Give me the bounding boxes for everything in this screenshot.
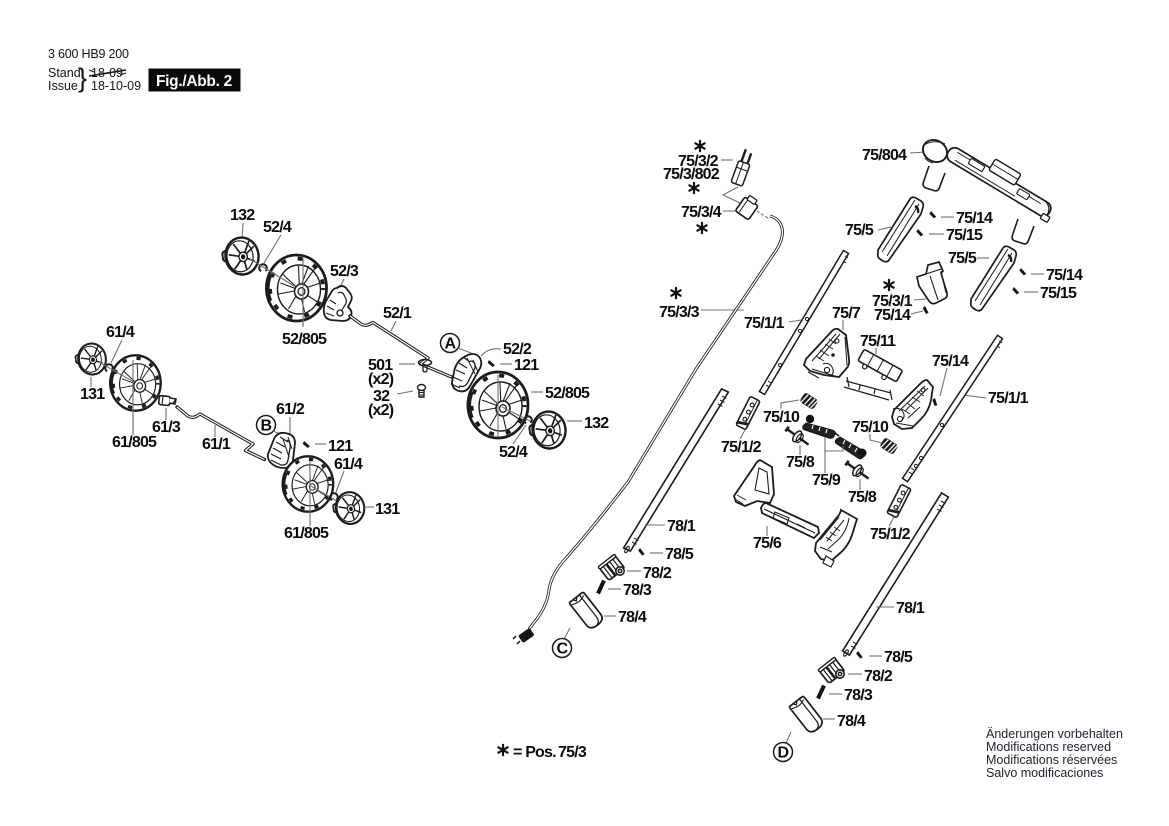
svg-text:78/4: 78/4	[618, 609, 647, 626]
svg-text:78/2: 78/2	[643, 565, 672, 582]
svg-text:78/2: 78/2	[864, 668, 893, 685]
svg-text:Änderungen vorbehalten: Änderungen vorbehalten	[986, 727, 1123, 741]
svg-text:75/6: 75/6	[753, 535, 782, 552]
svg-text:Modifications reserved: Modifications reserved	[986, 740, 1111, 754]
svg-text:78/1: 78/1	[896, 600, 925, 617]
svg-text:52/4: 52/4	[263, 219, 292, 236]
svg-text:78/3: 78/3	[623, 582, 652, 599]
svg-text:Stand: Stand	[48, 66, 81, 80]
svg-text:61/3: 61/3	[152, 419, 181, 436]
svg-text:61/4: 61/4	[334, 456, 363, 473]
svg-text:78/5: 78/5	[665, 546, 694, 563]
svg-text:78/4: 78/4	[837, 713, 866, 730]
svg-text:75/14: 75/14	[874, 307, 911, 324]
svg-text:(x2): (x2)	[368, 371, 394, 388]
svg-text:75/804: 75/804	[862, 147, 907, 164]
svg-text:}: }	[78, 63, 87, 93]
svg-text:75/10: 75/10	[763, 409, 800, 426]
svg-text:78/5: 78/5	[884, 649, 913, 666]
svg-text:Issue: Issue	[48, 79, 78, 93]
svg-text:75/3/802: 75/3/802	[663, 166, 720, 183]
svg-text:52/4: 52/4	[499, 444, 528, 461]
svg-text:121: 121	[328, 438, 353, 455]
svg-text:3 600 HB9 200: 3 600 HB9 200	[48, 47, 129, 61]
svg-text:Modifications réservées: Modifications réservées	[986, 753, 1117, 767]
svg-text:(x2): (x2)	[368, 402, 394, 419]
svg-text:121: 121	[514, 357, 539, 374]
svg-text:Salvo modificaciones: Salvo modificaciones	[986, 766, 1103, 780]
svg-text:= Pos.: = Pos.	[513, 744, 556, 761]
svg-text:75/7: 75/7	[832, 305, 861, 322]
svg-text:Fig./Abb. 2: Fig./Abb. 2	[156, 73, 232, 90]
svg-text:61/4: 61/4	[106, 324, 135, 341]
svg-text:75/1/2: 75/1/2	[721, 439, 762, 456]
svg-text:75/11: 75/11	[860, 333, 896, 350]
svg-text:131: 131	[375, 501, 400, 518]
svg-text:78/1: 78/1	[667, 518, 696, 535]
svg-text:61/1: 61/1	[202, 436, 231, 453]
svg-text:75/9: 75/9	[812, 472, 841, 489]
svg-text:75/15: 75/15	[1040, 285, 1077, 302]
svg-text:18-10-09: 18-10-09	[91, 79, 141, 93]
svg-text:D: D	[778, 745, 789, 762]
svg-text:52/1: 52/1	[383, 305, 412, 322]
svg-text:75/14: 75/14	[956, 210, 993, 227]
svg-text:75/3: 75/3	[558, 744, 587, 761]
svg-text:A: A	[445, 336, 457, 353]
svg-text:75/15: 75/15	[946, 227, 983, 244]
svg-text:61/805: 61/805	[284, 525, 329, 542]
svg-text:75/14: 75/14	[932, 353, 969, 370]
svg-text:78/3: 78/3	[844, 687, 873, 704]
svg-text:61/2: 61/2	[276, 401, 305, 418]
svg-text:C: C	[557, 641, 569, 658]
svg-text:52/805: 52/805	[545, 385, 590, 402]
svg-text:75/8: 75/8	[786, 454, 815, 471]
svg-text:75/10: 75/10	[852, 419, 889, 436]
svg-text:B: B	[261, 418, 272, 435]
svg-text:131: 131	[80, 386, 105, 403]
svg-text:75/3/3: 75/3/3	[659, 304, 700, 321]
svg-text:52/805: 52/805	[282, 331, 327, 348]
svg-text:75/3/4: 75/3/4	[681, 204, 722, 221]
svg-text:132: 132	[584, 415, 609, 432]
svg-text:61/805: 61/805	[112, 434, 157, 451]
svg-text:75/5: 75/5	[948, 250, 977, 267]
svg-text:75/8: 75/8	[848, 489, 877, 506]
svg-text:75/1/1: 75/1/1	[744, 315, 785, 332]
svg-text:132: 132	[230, 207, 255, 224]
svg-text:75/14: 75/14	[1046, 267, 1083, 284]
svg-text:75/1/2: 75/1/2	[870, 526, 911, 543]
svg-text:75/1/1: 75/1/1	[988, 390, 1029, 407]
svg-text:52/3: 52/3	[330, 263, 359, 280]
svg-text:75/5: 75/5	[845, 222, 874, 239]
svg-text:52/2: 52/2	[503, 341, 532, 358]
